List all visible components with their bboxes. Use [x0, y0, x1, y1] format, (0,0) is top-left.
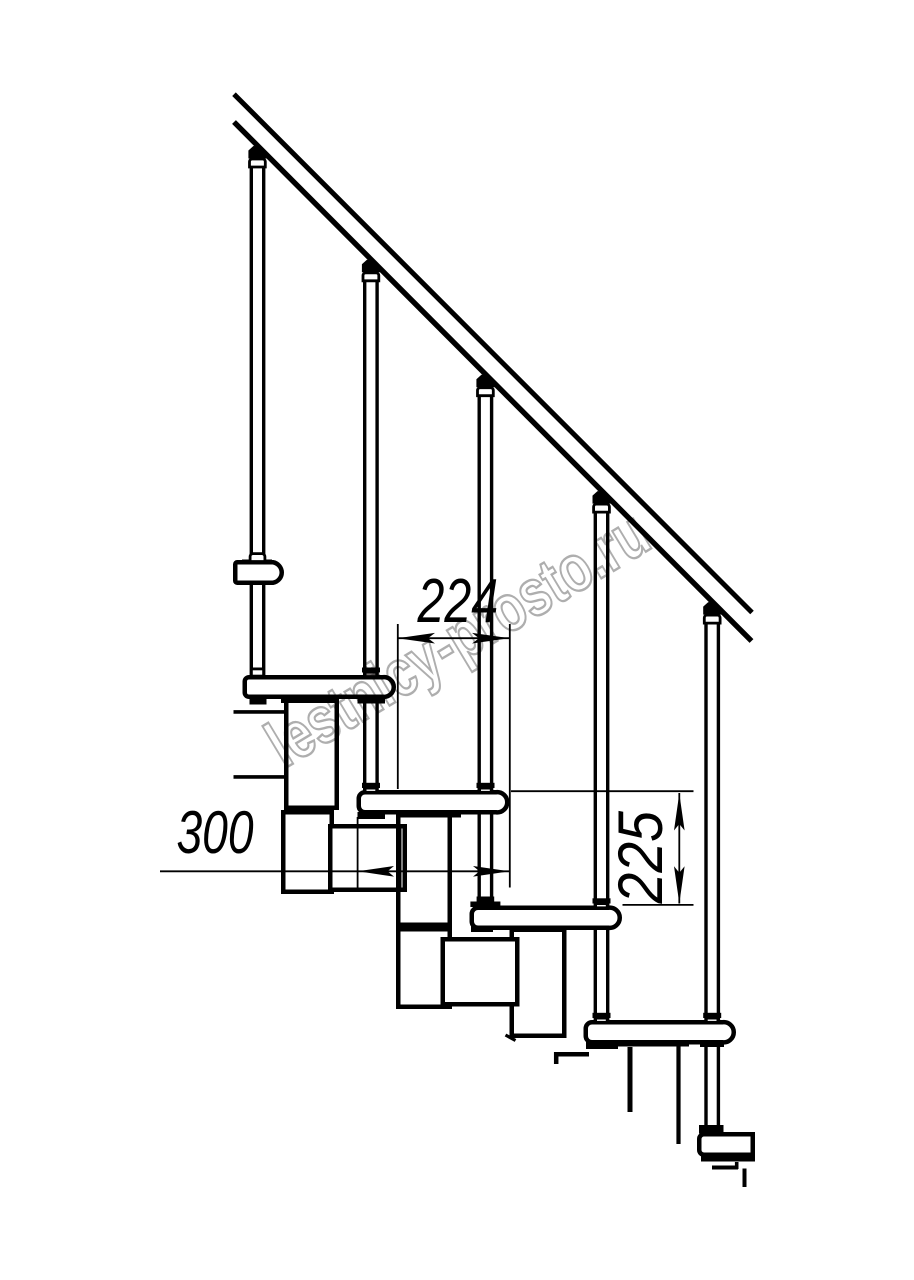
- svg-text:225: 225: [605, 810, 676, 904]
- svg-text:300: 300: [177, 800, 254, 866]
